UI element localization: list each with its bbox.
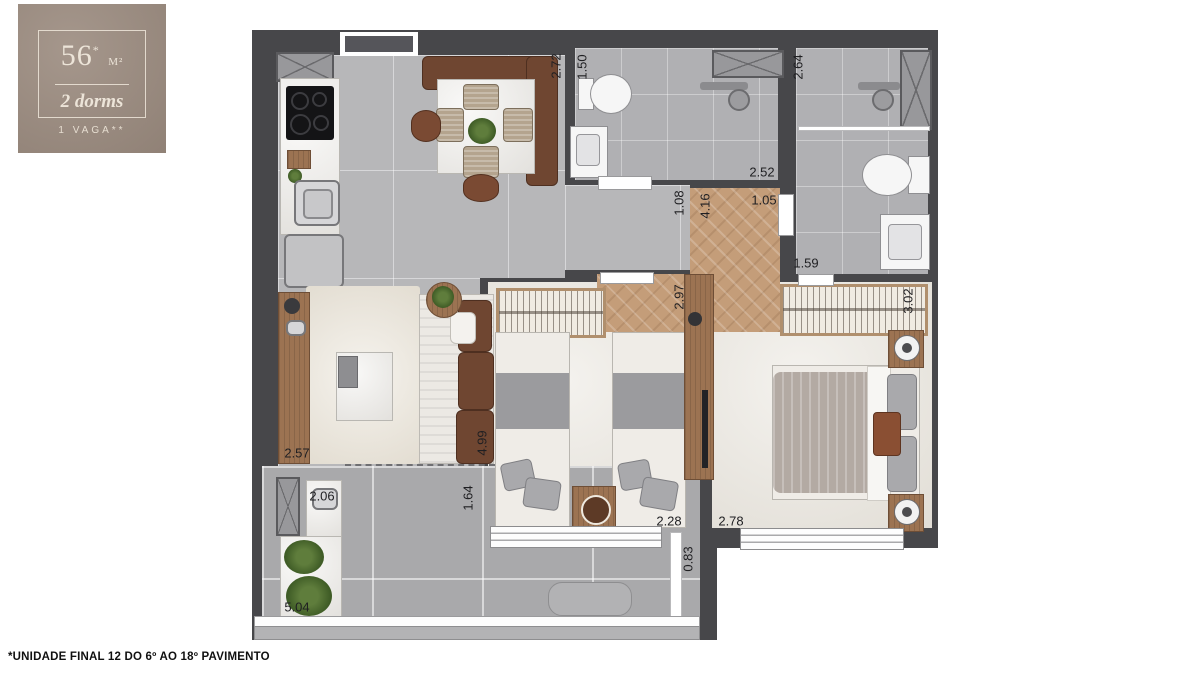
- dimension-label: 4.16: [698, 193, 713, 218]
- dimension-label: 2.72: [549, 53, 564, 78]
- dimension-label: 1.64: [461, 485, 476, 510]
- dimension-label: 1.05: [751, 193, 776, 208]
- page: 56* M² 2 dorms 1 VAGA**: [0, 0, 1200, 675]
- dimension-label: 4.99: [475, 430, 490, 455]
- dimension-label: 2.97: [672, 284, 687, 309]
- footnote: *UNIDADE FINAL 12 DO 6º AO 18º PAVIMENTO: [8, 651, 270, 663]
- dimension-label: 1.08: [672, 190, 687, 215]
- dimension-label: 2.64: [791, 54, 806, 79]
- dimension-label: 1.50: [575, 54, 590, 79]
- dimension-label: 2.78: [718, 514, 743, 529]
- dimension-label: 2.52: [749, 165, 774, 180]
- dimension-label: 1.59: [793, 256, 818, 271]
- dimension-label: 3.02: [901, 288, 916, 313]
- dimension-label: 0.83: [681, 546, 696, 571]
- dimension-label: 2.28: [656, 514, 681, 529]
- dimension-layer: 2.721.502.522.641.084.161.051.592.973.02…: [0, 0, 1200, 675]
- dimension-label: 2.06: [309, 489, 334, 504]
- dimension-label: 5.04: [284, 600, 309, 615]
- dimension-label: 2.57: [284, 446, 309, 461]
